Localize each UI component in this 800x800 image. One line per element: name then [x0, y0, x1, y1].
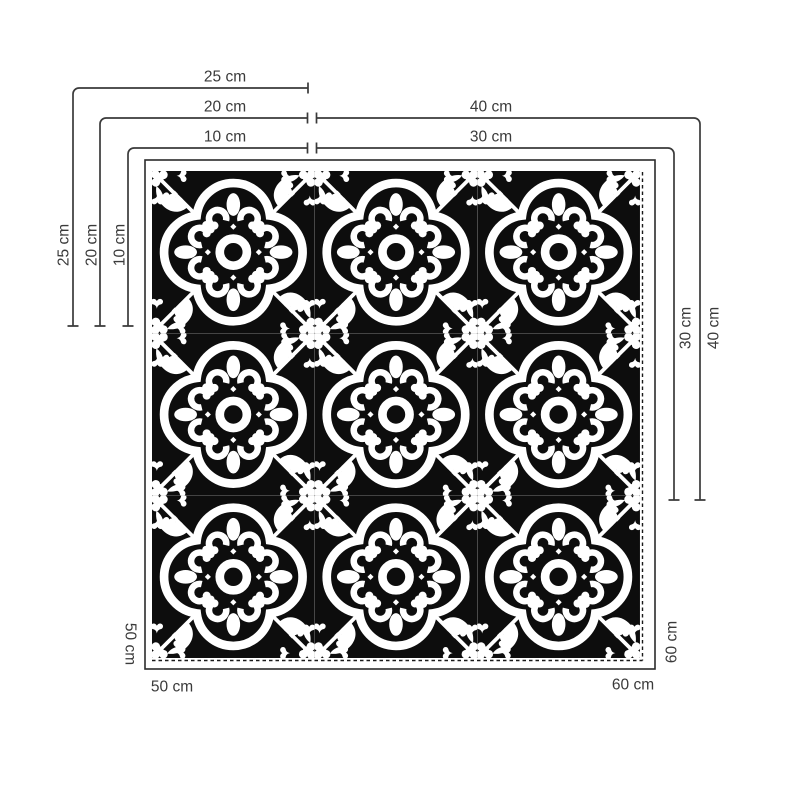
tile-cell	[313, 170, 478, 335]
dim-25-label-left: 25 cm	[56, 224, 73, 266]
dim-40-label-top: 40 cm	[470, 99, 512, 116]
dim-50-label-left-vertical: 50 cm	[122, 623, 139, 665]
dim-10-label-left: 10 cm	[112, 224, 129, 266]
dim-10-label-top: 10 cm	[204, 129, 246, 146]
dim-25-label-top: 25 cm	[204, 69, 246, 86]
dim-50-label-bottom: 50 cm	[151, 679, 193, 696]
dim-30-label-right: 30 cm	[678, 307, 695, 349]
tile-cell	[151, 494, 316, 659]
dim-40-label-right: 40 cm	[706, 307, 723, 349]
tile-size-diagram: 25 cm 20 cm 10 cm 40 cm 30 cm 25 cm 20 c…	[0, 0, 800, 800]
dim-30-label-top: 30 cm	[470, 129, 512, 146]
tile-cell	[476, 170, 641, 335]
tile-cell	[476, 494, 641, 659]
dim-60-label-right-vertical: 60 cm	[664, 621, 681, 663]
dim-60-label-bottom: 60 cm	[612, 677, 654, 694]
tile-cell	[313, 332, 478, 497]
dim-20-label-top: 20 cm	[204, 99, 246, 116]
dim-20-label-left: 20 cm	[84, 224, 101, 266]
size-diagram-svg: 25 cm 20 cm 10 cm 40 cm 30 cm 25 cm 20 c…	[0, 0, 800, 800]
tile-cell	[151, 332, 316, 497]
tile-cell	[151, 170, 316, 335]
tile-pattern	[151, 170, 641, 659]
tile-cell	[476, 332, 641, 497]
tile-cell	[313, 494, 478, 659]
